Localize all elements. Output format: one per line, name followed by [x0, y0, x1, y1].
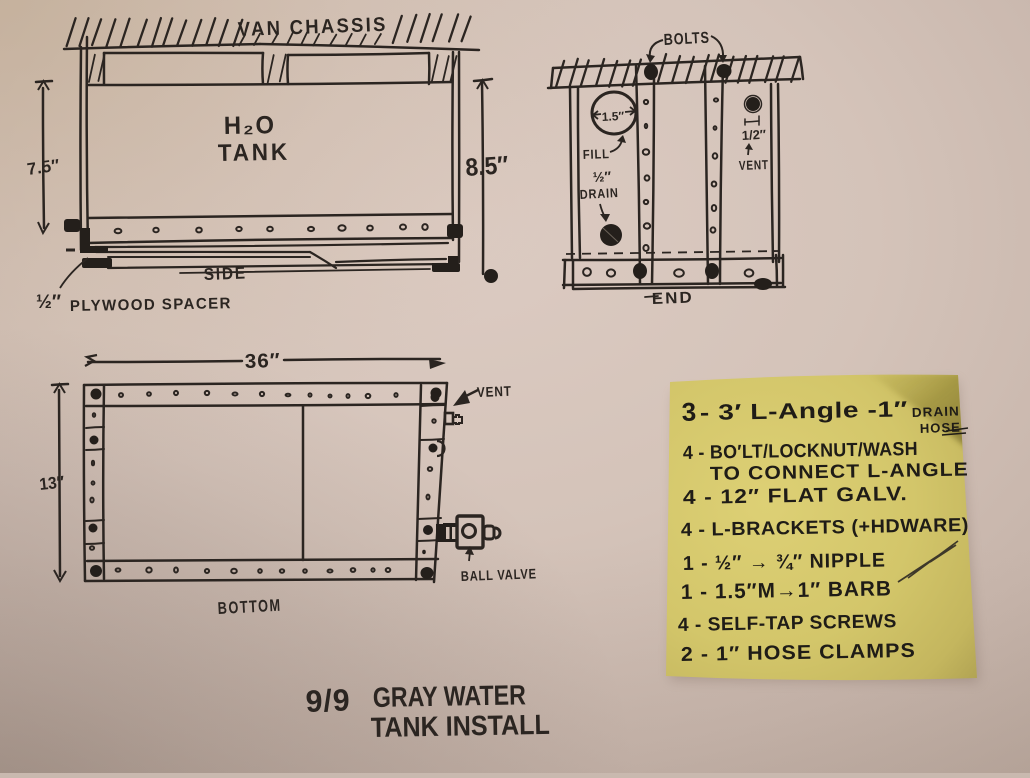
svg-text:1.5″: 1.5″: [601, 109, 624, 124]
svg-text:SIDE: SIDE: [203, 264, 247, 284]
svg-text:½″: ½″: [592, 168, 611, 185]
svg-text:4 - SELF-TAP SCREWS: 4 - SELF-TAP SCREWS: [678, 611, 897, 636]
svg-text:1 - 1.5″M→1″ BARB: 1 - 1.5″M→1″ BARB: [681, 577, 892, 604]
svg-text:TANK: TANK: [218, 139, 290, 167]
svg-text:DRAIN: DRAIN: [912, 403, 960, 420]
svg-text:H₂O: H₂O: [224, 111, 276, 140]
svg-text:PLYWOOD SPACER: PLYWOOD SPACER: [70, 295, 232, 315]
svg-text:TANK INSTALL: TANK INSTALL: [371, 709, 551, 743]
svg-text:END: END: [652, 290, 695, 308]
svg-text:4 - 12″ FLAT GALV.: 4 - 12″ FLAT GALV.: [683, 483, 908, 509]
svg-text:3: 3: [681, 397, 697, 427]
svg-text:8.5″: 8.5″: [464, 151, 509, 182]
svg-text:2 - 1″ HOSE CLAMPS: 2 - 1″ HOSE CLAMPS: [681, 640, 916, 666]
svg-text:BOLTS: BOLTS: [663, 30, 710, 49]
svg-text:GRAY WATER: GRAY WATER: [373, 679, 527, 713]
svg-text:1/2″: 1/2″: [741, 127, 766, 143]
svg-text:BALL VALVE: BALL VALVE: [461, 565, 538, 584]
svg-text:1 - ½″ → ¾″ NIPPLE: 1 - ½″ → ¾″ NIPPLE: [683, 549, 886, 575]
svg-text:DRAIN: DRAIN: [579, 185, 619, 202]
svg-text:9/9: 9/9: [305, 682, 351, 719]
svg-text:- 3′ L-Angle -1″: - 3′ L-Angle -1″: [700, 396, 908, 425]
svg-text:BOTTOM: BOTTOM: [217, 596, 282, 618]
svg-text:VENT: VENT: [739, 157, 770, 173]
svg-text:FILL: FILL: [583, 146, 611, 162]
svg-text:VENT: VENT: [477, 383, 513, 400]
svg-text:36″: 36″: [244, 350, 281, 373]
svg-text:13″: 13″: [38, 472, 65, 494]
svg-text:½″: ½″: [36, 292, 61, 313]
